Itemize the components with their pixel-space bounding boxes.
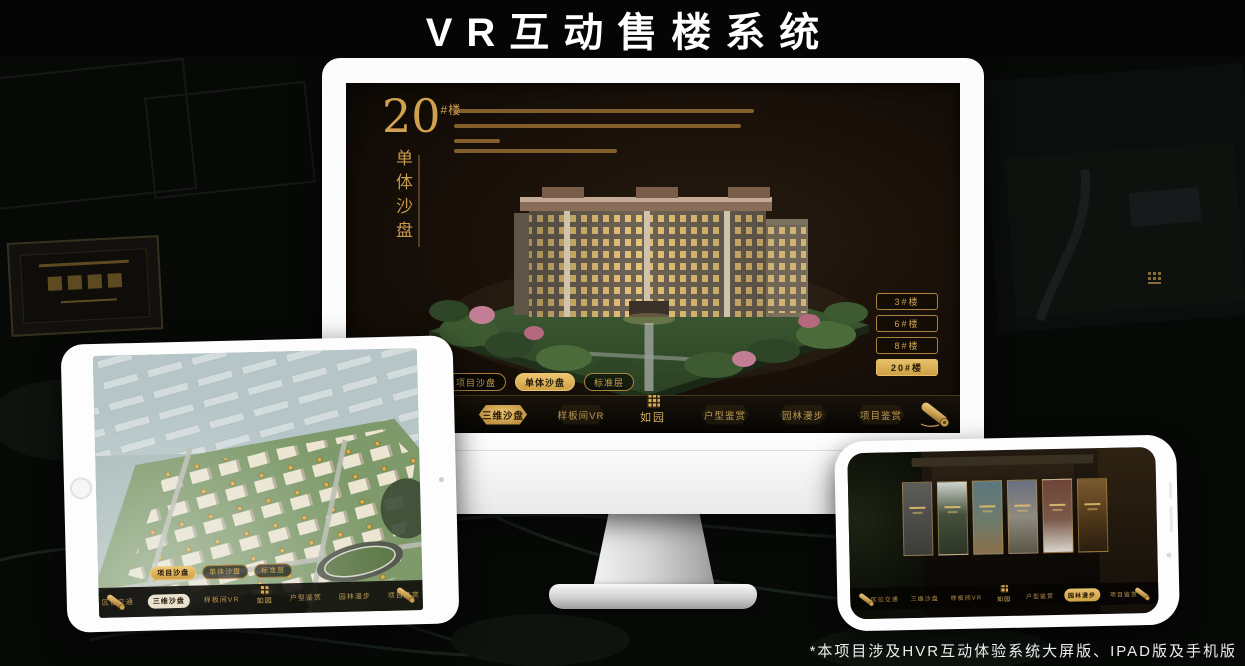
nav-item-floorplan-gallery[interactable]: 户型鉴赏 (1024, 588, 1056, 602)
tablet-screen: 项目沙盘 单体沙盘 标准层 区位交通 三维沙盘 样板间VR 如园 户型鉴赏 园林… (93, 348, 423, 618)
scroll-icon[interactable] (857, 592, 875, 608)
nav-item-3d-sandbox[interactable]: 三维沙盘 (475, 405, 531, 425)
tab-project-sandbox[interactable]: 项目沙盘 (446, 373, 506, 391)
nav-item-floorplan-gallery[interactable]: 户型鉴赏 (697, 405, 753, 425)
phone-device: 区位交通 三维沙盘 样板间VR 如园 户型鉴赏 园林漫步 项目鉴赏 (834, 434, 1180, 631)
unit-subtitle: 单体沙盘 (390, 149, 415, 299)
logo-seal-icon (1000, 584, 1008, 592)
logo-seal-icon (260, 586, 269, 595)
nav-item-label: 项目鉴赏 (860, 408, 902, 422)
nav-item-label: 户型鉴赏 (704, 408, 746, 422)
gallery-panel[interactable] (902, 482, 934, 557)
nav-item-model-room-vr[interactable]: 样板间VR (553, 405, 609, 425)
phone-screen: 区位交通 三维沙盘 样板间VR 如园 户型鉴赏 园林漫步 项目鉴赏 (847, 447, 1158, 619)
ruyuan-logo: 如园 (631, 395, 675, 425)
building-button-8[interactable]: 8#楼 (876, 337, 938, 354)
scroll-icon[interactable] (105, 592, 127, 613)
gallery-panel[interactable] (937, 481, 969, 556)
poster-stage: VR互动售楼系统 20#楼 单体沙盘 (0, 0, 1245, 666)
volume-button[interactable] (1169, 507, 1173, 533)
scroll-icon[interactable] (1133, 586, 1151, 602)
nav-item-garden-stroll[interactable]: 园林漫步 (336, 589, 374, 604)
tab-single-building-sandbox[interactable]: 单体沙盘 (515, 373, 575, 391)
building-button-20[interactable]: 20#楼 (876, 359, 938, 376)
nav-item-label: 园林漫步 (782, 408, 824, 422)
tab-project-sandbox[interactable]: 项目沙盘 (150, 566, 196, 581)
nav-item-project-gallery[interactable]: 项目鉴赏 (853, 405, 909, 425)
gallery-panel[interactable] (1007, 479, 1039, 554)
footnote: *本项目涉及HVR互动体验系统大屏版、IPAD版及手机版 (810, 640, 1237, 661)
tab-standard-floor[interactable]: 标准层 (254, 563, 292, 578)
building-model-3d[interactable] (414, 153, 894, 395)
monitor-stand-neck (593, 512, 715, 588)
home-button[interactable] (70, 477, 93, 500)
text-line (454, 139, 500, 143)
building-selector: 3#楼 6#楼 8#楼 20#楼 (876, 293, 938, 376)
nav-item-floorplan-gallery[interactable]: 户型鉴赏 (287, 590, 325, 605)
nav-item-model-room-vr[interactable]: 样板间VR (201, 592, 243, 607)
logo-text: 如园 (640, 409, 666, 425)
camera-icon (439, 477, 444, 482)
nav-item-garden-stroll[interactable]: 园林漫步 (1064, 588, 1100, 602)
text-line (454, 124, 741, 128)
monitor-stand-base (549, 584, 757, 609)
building-button-6[interactable]: 6#楼 (876, 315, 938, 332)
gallery-panel[interactable] (1042, 479, 1074, 554)
nav-item-3d-sandbox[interactable]: 三维沙盘 (148, 594, 190, 609)
tablet-device: 项目沙盘 单体沙盘 标准层 区位交通 三维沙盘 样板间VR 如园 户型鉴赏 园林… (61, 335, 460, 632)
nav-item-garden-stroll[interactable]: 园林漫步 (775, 405, 831, 425)
view-tabs: 项目沙盘 单体沙盘 标准层 (446, 373, 634, 391)
unit-title: 20#楼 (382, 93, 461, 139)
side-button[interactable] (1169, 483, 1172, 499)
gallery-panel[interactable] (1077, 478, 1109, 553)
nav-item-label: 样板间VR (558, 408, 605, 422)
nav-item-model-room-vr[interactable]: 样板间VR (949, 590, 985, 604)
unit-number: 20 (382, 89, 441, 143)
text-line (454, 109, 754, 113)
ruyuan-logo: 如园 (992, 584, 1016, 602)
scroll-icon[interactable] (918, 400, 952, 430)
camera-icon (1166, 553, 1171, 558)
scroll-icon[interactable] (395, 585, 417, 606)
ruyuan-logo: 如园 (253, 586, 276, 607)
logo-text: 如园 (257, 596, 273, 606)
nav-item-label: 三维沙盘 (482, 408, 524, 422)
tab-single-building-sandbox[interactable]: 单体沙盘 (202, 564, 248, 579)
scene-gallery (902, 478, 1109, 556)
gallery-panel[interactable] (972, 480, 1004, 555)
logo-seal-icon (647, 395, 660, 408)
nav-item-3d-sandbox[interactable]: 三维沙盘 (909, 591, 941, 605)
title-band: VR互动售楼系统 (0, 0, 1245, 57)
page-title: VR互动售楼系统 (412, 0, 834, 58)
building-button-3[interactable]: 3#楼 (876, 293, 938, 310)
tab-standard-floor[interactable]: 标准层 (584, 373, 634, 391)
logo-text: 如园 (997, 593, 1011, 602)
